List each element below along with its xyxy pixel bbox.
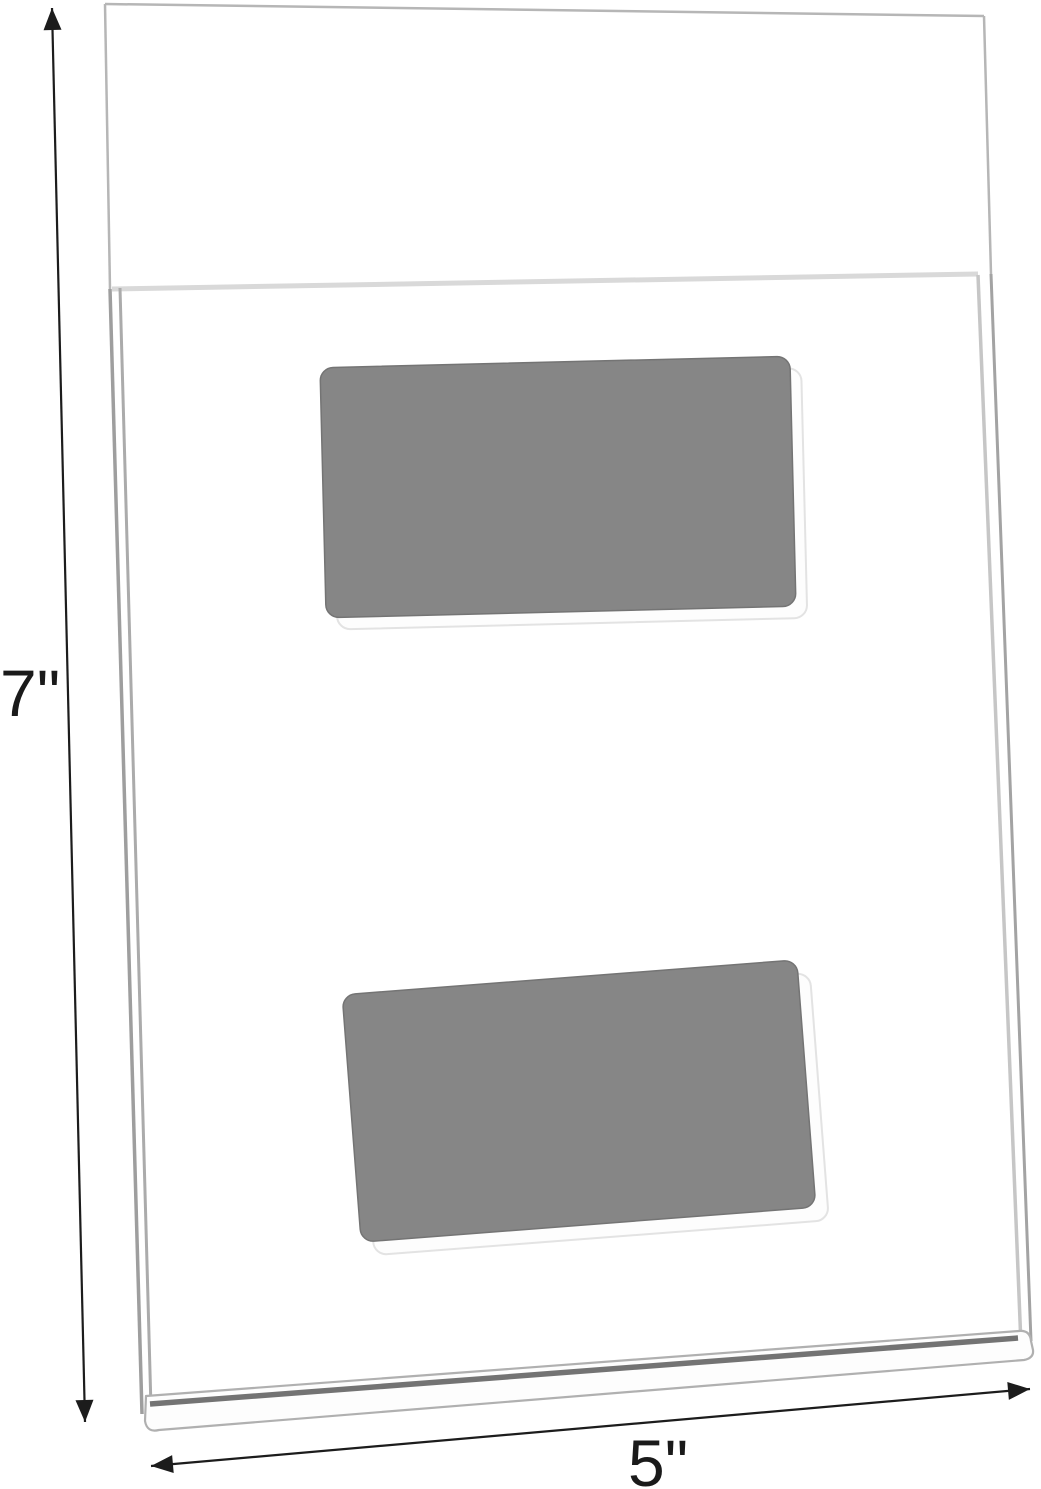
adhesive-pad-top-group (320, 356, 807, 630)
adhesive-pad-bottom (342, 960, 816, 1242)
height-dimension-label: 7" (0, 656, 60, 730)
sign-holder (105, 4, 1033, 1431)
product-dimension-diagram: 7" 5" (0, 0, 1041, 1489)
adhesive-pad-top (320, 356, 796, 617)
adhesive-pad-bottom-group (342, 959, 829, 1256)
product-illustration: 7" 5" (0, 0, 1041, 1489)
width-dimension-label: 5" (628, 1426, 688, 1489)
